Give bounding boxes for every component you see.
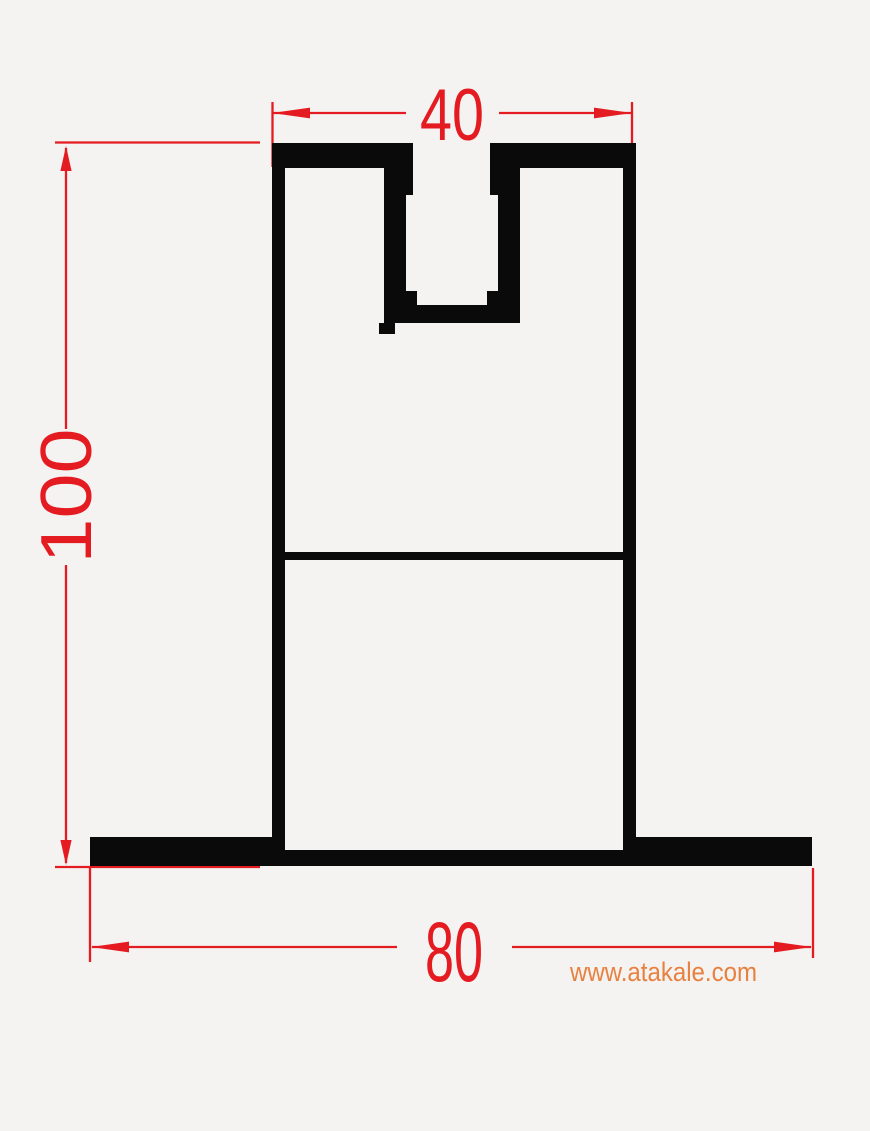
profile-middle-web [283, 552, 625, 560]
profile-channel-wall-left [384, 166, 406, 323]
arrowhead-top-width-right [594, 108, 632, 119]
dimension-base-width-label: 80 [425, 905, 483, 999]
profile-cross-section [90, 143, 812, 866]
profile-channel-step-left [406, 291, 417, 305]
arrowhead-height-top [60, 146, 71, 171]
profile-channel-step-right [487, 291, 498, 305]
arrowhead-base-width-left [91, 942, 129, 953]
profile-channel-nub [379, 323, 395, 334]
profile-base-flange-right [634, 837, 812, 866]
profile-channel-bottom [384, 305, 520, 323]
dimension-lines [55, 102, 813, 962]
profile-right-wall [623, 143, 636, 866]
profile-channel-wall-right [498, 166, 520, 323]
profile-base-flange-left [90, 837, 274, 866]
profile-drawing: 40 100 80 www.atakale.com [0, 0, 870, 1131]
profile-left-wall [272, 143, 285, 866]
profile-top-cap-right [490, 143, 636, 168]
arrowhead-base-width-right [774, 942, 812, 953]
watermark-text: www.atakale.com [569, 957, 757, 987]
profile-base-flange-center [283, 850, 625, 866]
profile-top-cap-left [272, 143, 413, 168]
arrowhead-top-width-left [272, 108, 310, 119]
dimension-height-label: 100 [27, 429, 107, 564]
arrowhead-height-bottom [60, 840, 71, 865]
dimension-top-width-label: 40 [420, 75, 484, 156]
drawing-canvas: 40 100 80 www.atakale.com [0, 0, 870, 1131]
